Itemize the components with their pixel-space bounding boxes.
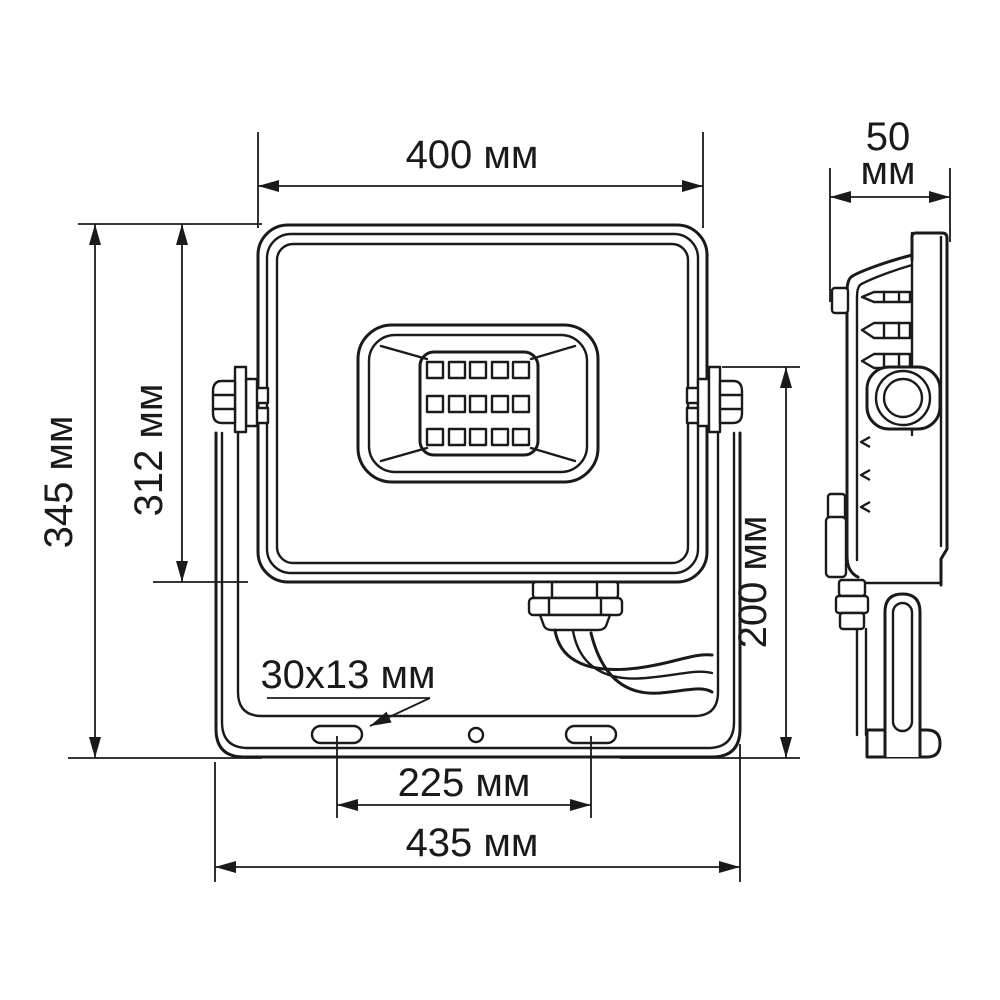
side-mount-tabs [826,288,848,577]
cooling-fins [862,292,910,368]
pivot-knob [867,367,940,429]
power-cable [555,630,712,693]
dim-front-width: 400 мм [258,132,703,228]
dim-hole-spacing-label: 225 мм [398,761,531,805]
dim-bracket-width-label: 435 мм [406,821,539,865]
dim-depth: 50 мм [830,115,950,302]
drawing-canvas: 400 мм 50 мм 345 мм 312 мм 200 мм 30x13 … [0,0,1000,1000]
top-cover [847,255,912,297]
front-face [847,292,858,577]
side-view [826,233,947,757]
lower-fins [861,437,870,512]
bracket-center-hole [469,728,483,742]
dim-depth-unit-label: мм [861,149,916,193]
dim-bracket-height-label: 200 мм [731,516,775,649]
slot-size-label: 30x13 мм [260,653,435,697]
cable-gland [529,582,622,630]
mounting-bolt-left [213,367,257,432]
floodlight-body [258,225,707,582]
side-bracket-arm [885,594,920,757]
technical-drawing: 400 мм 50 мм 345 мм 312 мм 200 мм 30x13 … [0,0,1000,1000]
dim-total-height-label: 345 мм [37,416,81,549]
side-cable-gland [836,580,868,629]
dim-front-width-label: 400 мм [406,133,539,177]
dim-body-height-label: 312 мм [127,384,171,517]
side-cable [857,629,866,735]
